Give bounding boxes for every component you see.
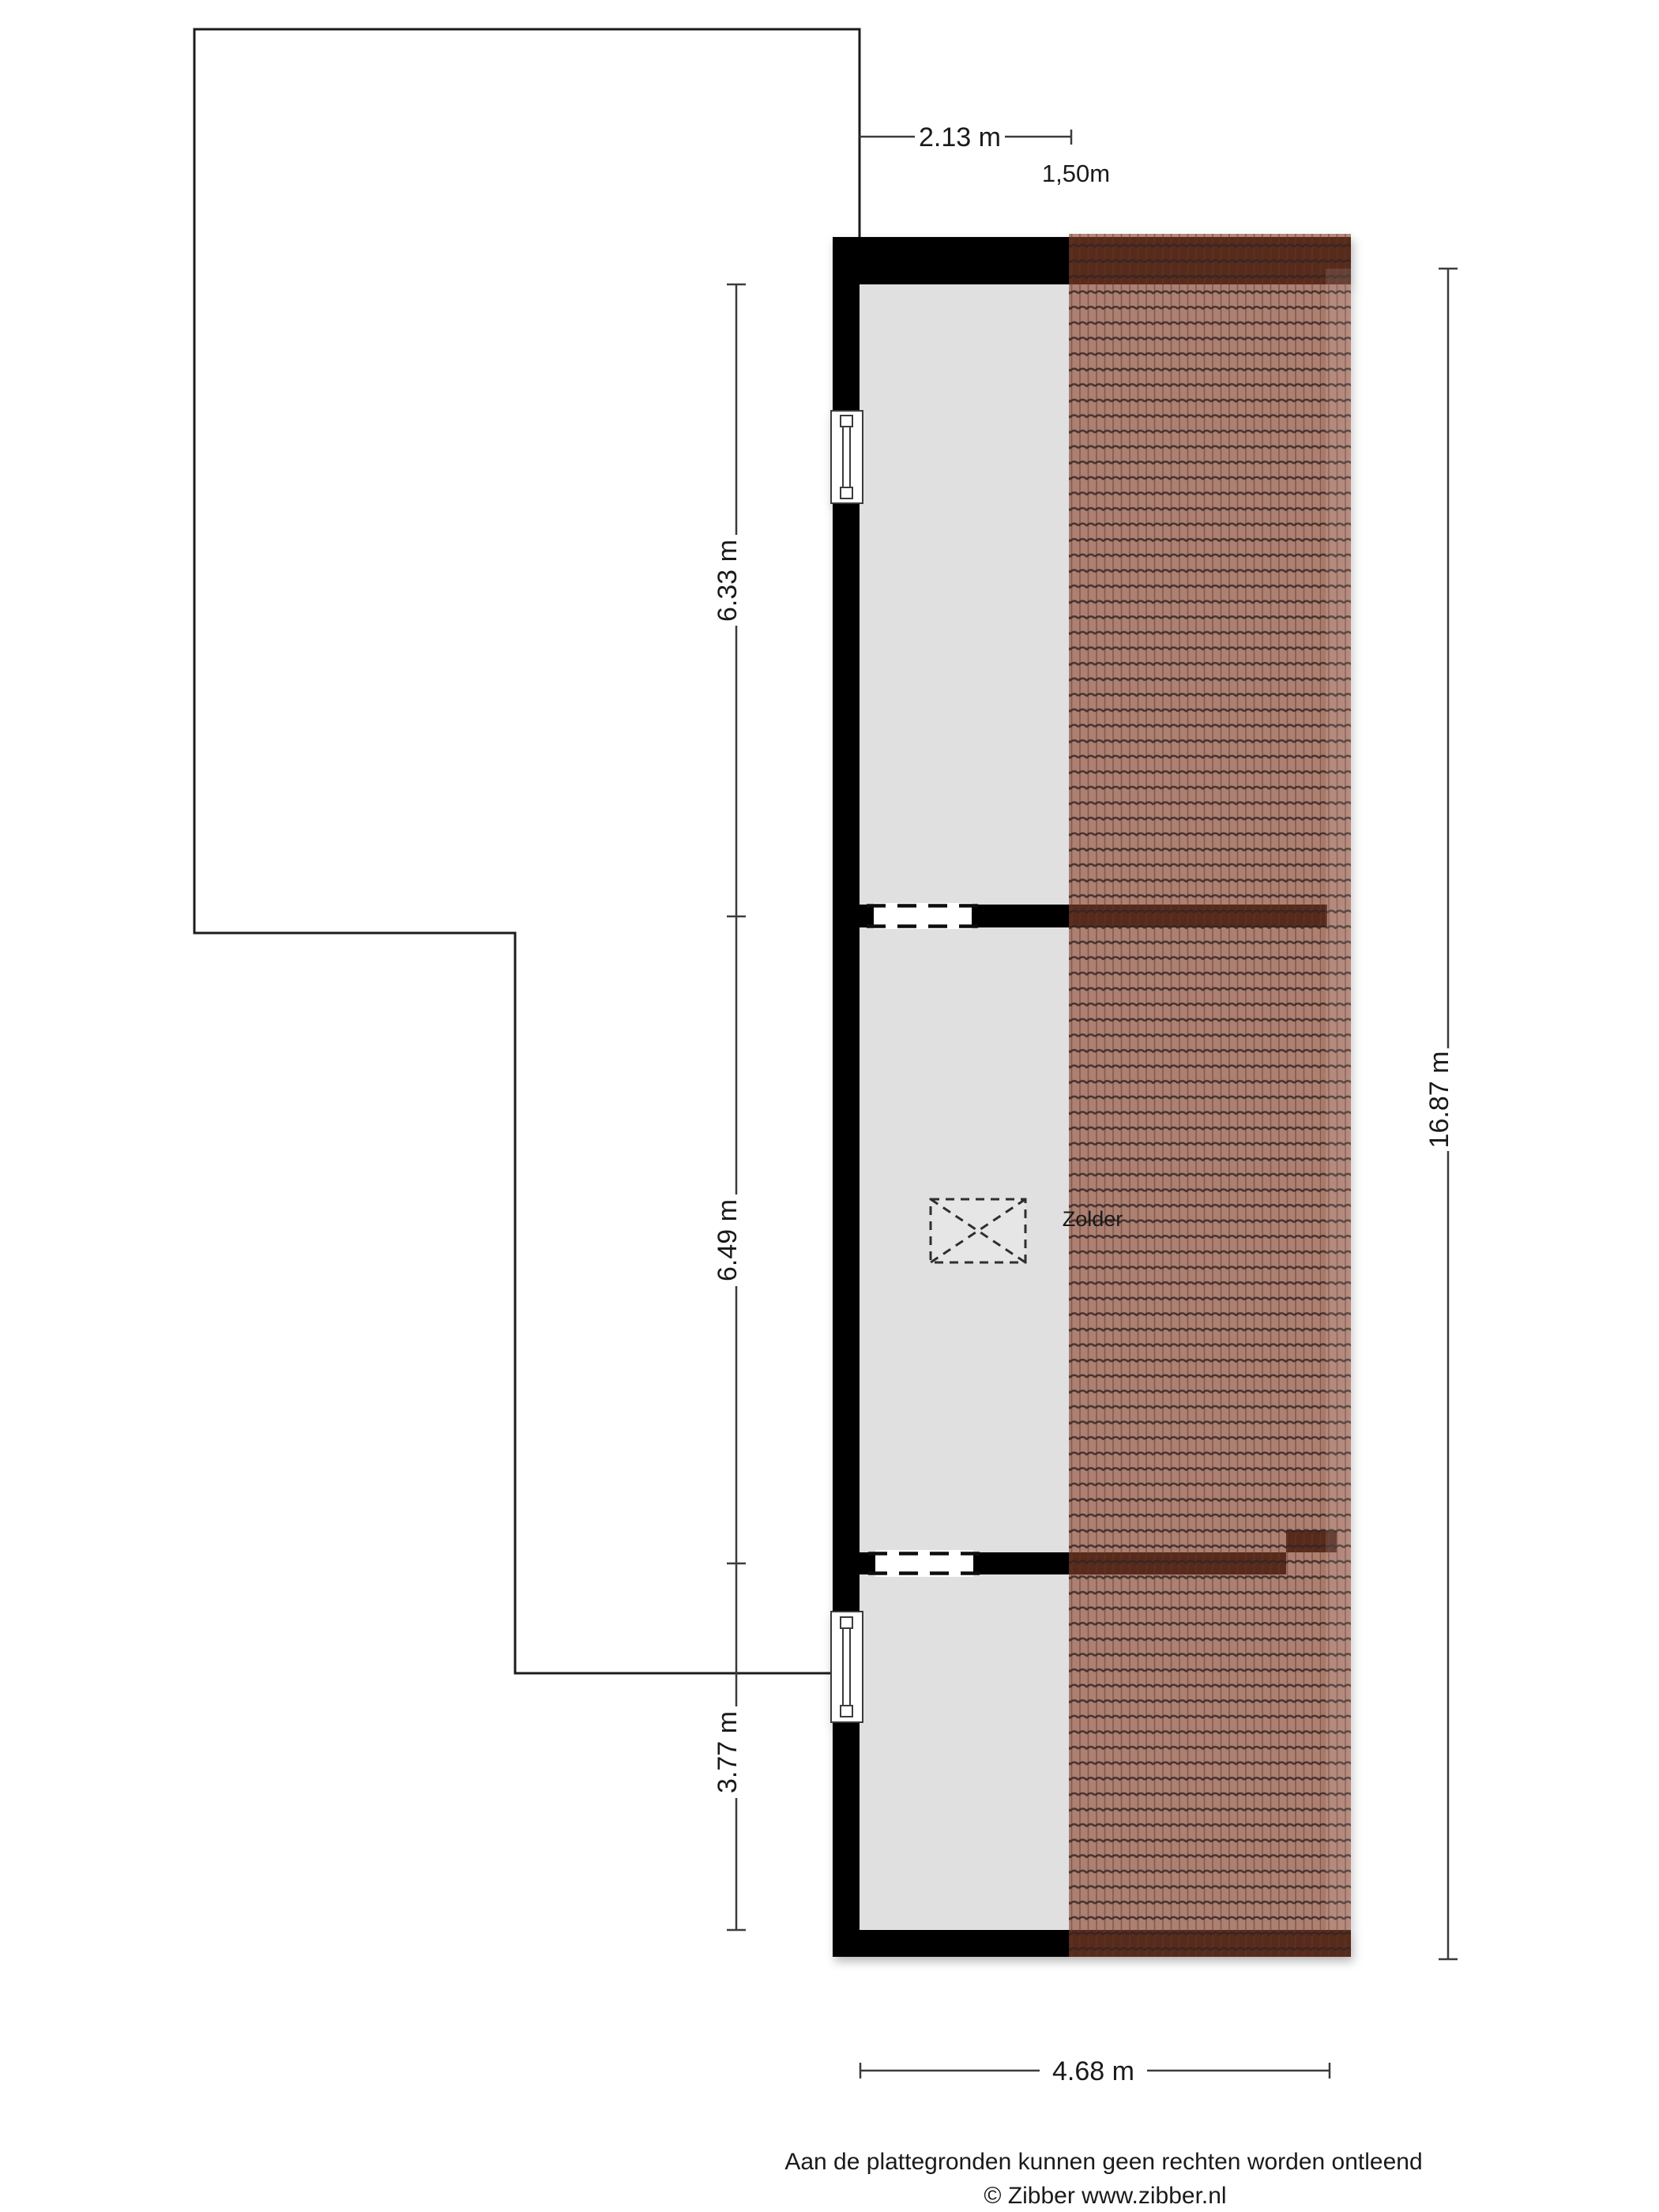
dim-right-label: 16.87 m: [1424, 1051, 1454, 1149]
window-icon-top-room: [831, 411, 863, 503]
building-outline: [194, 29, 860, 1673]
dim-left: [727, 284, 746, 1930]
dim-left-bottom-label: 3.77 m: [713, 1711, 743, 1793]
wall-opening-1: [867, 903, 980, 929]
footer-copyright: © Zibber www.zibber.nl: [984, 2183, 1226, 2209]
stair-opening-hatch: [931, 1199, 1025, 1262]
room-label: Zolder: [1063, 1207, 1123, 1231]
floorplan-page: Zolder 2.13 m 1,50m 6.33 m 6.49 m 3.77 m…: [0, 0, 1659, 2212]
headroom-label: 1,50m: [1042, 160, 1110, 187]
dim-top-label: 2.13 m: [919, 122, 1001, 152]
footer-disclaimer: Aan de plattegronden kunnen geen rechten…: [784, 2149, 1422, 2175]
roof-tile-texture: [1069, 234, 1351, 1957]
floorplan-canvas: Zolder 2.13 m 1,50m 6.33 m 6.49 m 3.77 m…: [0, 0, 1659, 2212]
attic-plan: [831, 234, 1351, 1957]
dim-left-top-label: 6.33 m: [713, 540, 743, 622]
window-icon-bottom-room: [831, 1612, 863, 1722]
dim-left-middle-label: 6.49 m: [713, 1199, 743, 1281]
roof-overlay: [1069, 234, 1351, 1957]
wall-opening-2: [868, 1550, 981, 1577]
dim-bottom-label: 4.68 m: [1052, 2056, 1134, 2086]
roof-edge-highlight: [1326, 269, 1351, 1930]
